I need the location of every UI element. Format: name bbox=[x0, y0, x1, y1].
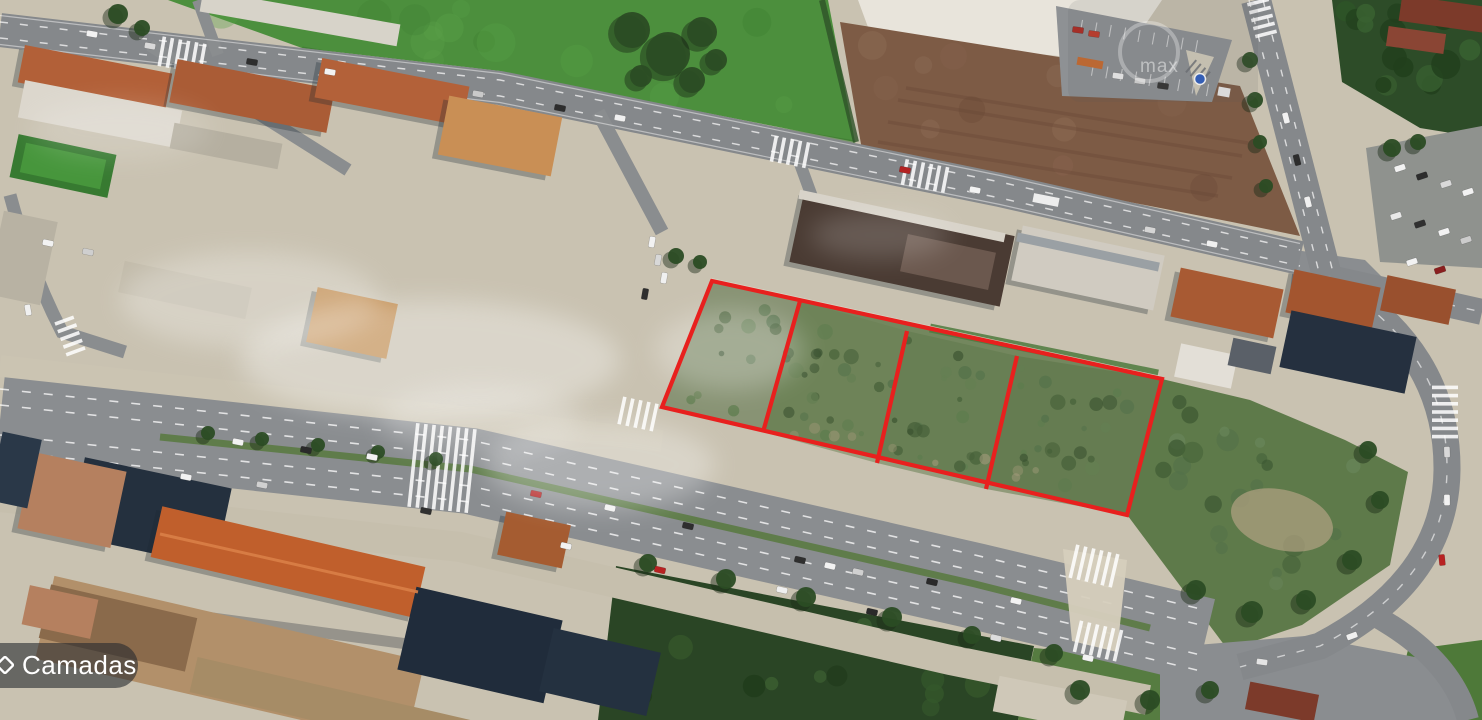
cloud-haze bbox=[120, 252, 380, 348]
car bbox=[1438, 554, 1445, 566]
tree bbox=[687, 17, 717, 47]
satellite-scene bbox=[0, 0, 1482, 720]
tree bbox=[255, 432, 269, 446]
layers-button-label: Camadas bbox=[22, 650, 137, 681]
tree bbox=[614, 12, 650, 48]
tree bbox=[1186, 580, 1206, 600]
tree bbox=[882, 607, 902, 627]
tree bbox=[108, 4, 128, 24]
tree bbox=[705, 49, 727, 71]
tree bbox=[1371, 491, 1389, 509]
map-viewport: max Camadas bbox=[0, 0, 1482, 720]
tree bbox=[693, 255, 707, 269]
cloud-haze bbox=[655, 310, 805, 390]
tree bbox=[429, 452, 443, 466]
tree bbox=[1201, 681, 1219, 699]
watermark-text: max bbox=[1140, 56, 1179, 78]
tree bbox=[1140, 690, 1160, 710]
car bbox=[1444, 446, 1450, 457]
tree bbox=[796, 587, 816, 607]
tree bbox=[668, 248, 684, 264]
tree bbox=[1259, 179, 1273, 193]
tree bbox=[1070, 680, 1090, 700]
tree bbox=[1342, 550, 1362, 570]
layers-diamond-icon bbox=[0, 656, 14, 674]
tree bbox=[201, 426, 215, 440]
car bbox=[1444, 494, 1450, 505]
cloud-haze bbox=[810, 211, 950, 259]
tree bbox=[679, 67, 705, 93]
tree bbox=[630, 65, 652, 87]
tree bbox=[1253, 135, 1267, 149]
tree bbox=[1296, 590, 1316, 610]
tree bbox=[1241, 601, 1263, 623]
tree bbox=[716, 569, 736, 589]
tree bbox=[1410, 134, 1426, 150]
tree bbox=[1359, 441, 1377, 459]
tree bbox=[963, 626, 981, 644]
car bbox=[1256, 658, 1268, 665]
tree bbox=[1045, 644, 1063, 662]
layers-button[interactable]: Camadas bbox=[0, 643, 138, 688]
cloud-haze bbox=[380, 385, 580, 455]
tree bbox=[311, 438, 325, 452]
satellite-map[interactable] bbox=[0, 0, 1482, 720]
tree bbox=[1383, 139, 1401, 157]
cloud-haze bbox=[30, 100, 210, 160]
tree bbox=[134, 20, 150, 36]
